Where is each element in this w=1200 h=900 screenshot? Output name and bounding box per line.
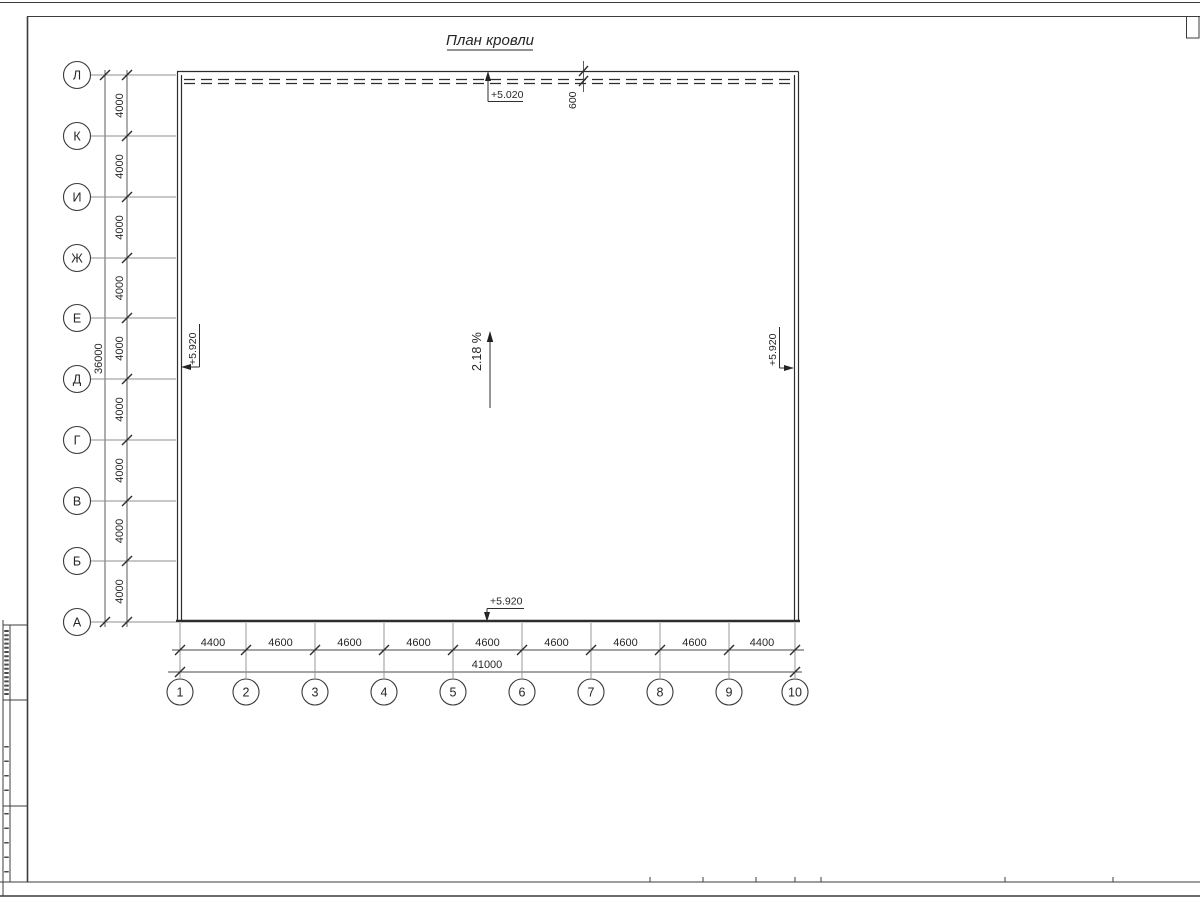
roof-outline — [176, 72, 800, 622]
parapet-offset-dimension: 600 — [567, 61, 588, 109]
sheet-frame — [0, 3, 1200, 897]
letter-axis-label: Г — [74, 434, 81, 448]
number-axis-label: 2 — [243, 686, 250, 700]
bottom-segment-dim-text: 4600 — [475, 637, 499, 649]
left-total-dim-text: 36000 — [93, 343, 105, 374]
bottom-segment-dim-text: 4600 — [544, 637, 568, 649]
left-segment-dim-text: 4000 — [114, 154, 126, 178]
number-axis-label: 8 — [657, 686, 664, 700]
page-title: План кровли — [446, 32, 535, 49]
left-segment-dim-text: 4000 — [114, 579, 126, 603]
number-axis-label: 1 — [177, 686, 184, 700]
left-segment-dim-text: 4000 — [114, 336, 126, 360]
letter-axes-group: ЛКИЖЕДГВБА400040004000400040004000400040… — [64, 62, 177, 636]
number-axis-label: 5 — [450, 686, 457, 700]
elevation-left-text: +5.920 — [187, 332, 199, 365]
bottom-dimension-chain: 41000 — [168, 650, 804, 672]
elevation-right-text: +5.920 — [767, 333, 779, 366]
left-segment-dim-text: 4000 — [114, 397, 126, 421]
bottom-segment-dim-text: 4600 — [268, 637, 292, 649]
left-segment-dim-text: 4000 — [114, 215, 126, 239]
drawing-sheet: План кровли 36000 41000 600 +5.020 — [0, 0, 1200, 900]
elevation-bottom-text: +5.920 — [490, 596, 523, 608]
roof-plan-drawing: План кровли 36000 41000 600 +5.020 — [0, 0, 1200, 900]
slope-annotation: 2.18 % — [470, 331, 493, 408]
letter-axis-label: И — [73, 191, 82, 205]
elevation-mark-left: +5.920 — [181, 324, 200, 370]
left-segment-dim-text: 4000 — [114, 458, 126, 482]
elevation-mark-top: +5.020 — [485, 71, 524, 102]
drawing-title: План кровли — [446, 32, 535, 50]
elevation-mark-bottom: +5.920 — [484, 596, 524, 623]
letter-axis-label: Д — [73, 373, 82, 387]
elevation-top-text: +5.020 — [491, 89, 524, 101]
number-axis-label: 7 — [588, 686, 595, 700]
bottom-segment-dim-text: 4600 — [406, 637, 430, 649]
bottom-segment-dim-text: 4600 — [613, 637, 637, 649]
number-axis-label: 3 — [312, 686, 319, 700]
left-segment-dim-text: 4000 — [114, 276, 126, 300]
left-segment-dim-text: 4000 — [114, 519, 126, 543]
number-axis-label: 4 — [381, 686, 388, 700]
frame-stamp-strip — [3, 620, 27, 896]
bottom-segment-dim-text: 4600 — [337, 637, 361, 649]
letter-axis-label: Е — [73, 312, 81, 326]
left-segment-dim-text: 4000 — [114, 93, 126, 117]
letter-axis-label: Б — [73, 555, 81, 569]
bottom-total-dim-text: 41000 — [472, 659, 503, 671]
letter-axis-label: А — [73, 616, 82, 630]
bottom-segment-dim-text: 4400 — [750, 637, 774, 649]
bottom-segment-dim-text: 4600 — [682, 637, 706, 649]
slope-arrow-up-icon — [487, 331, 493, 342]
letter-axis-label: Ж — [71, 252, 83, 266]
frame-corner-box — [1187, 17, 1200, 39]
letter-axis-label: Л — [73, 69, 81, 83]
elevation-mark-right: +5.920 — [767, 327, 794, 371]
number-axis-label: 9 — [726, 686, 733, 700]
letter-axis-label: В — [73, 495, 81, 509]
slope-text: 2.18 % — [470, 332, 484, 371]
number-axis-label: 10 — [788, 686, 802, 700]
number-axis-label: 6 — [519, 686, 526, 700]
letter-axis-label: К — [73, 130, 81, 144]
bottom-segment-dim-text: 4400 — [201, 637, 225, 649]
titleblock-column-ticks — [650, 877, 1113, 882]
parapet-offset-text: 600 — [567, 91, 579, 109]
